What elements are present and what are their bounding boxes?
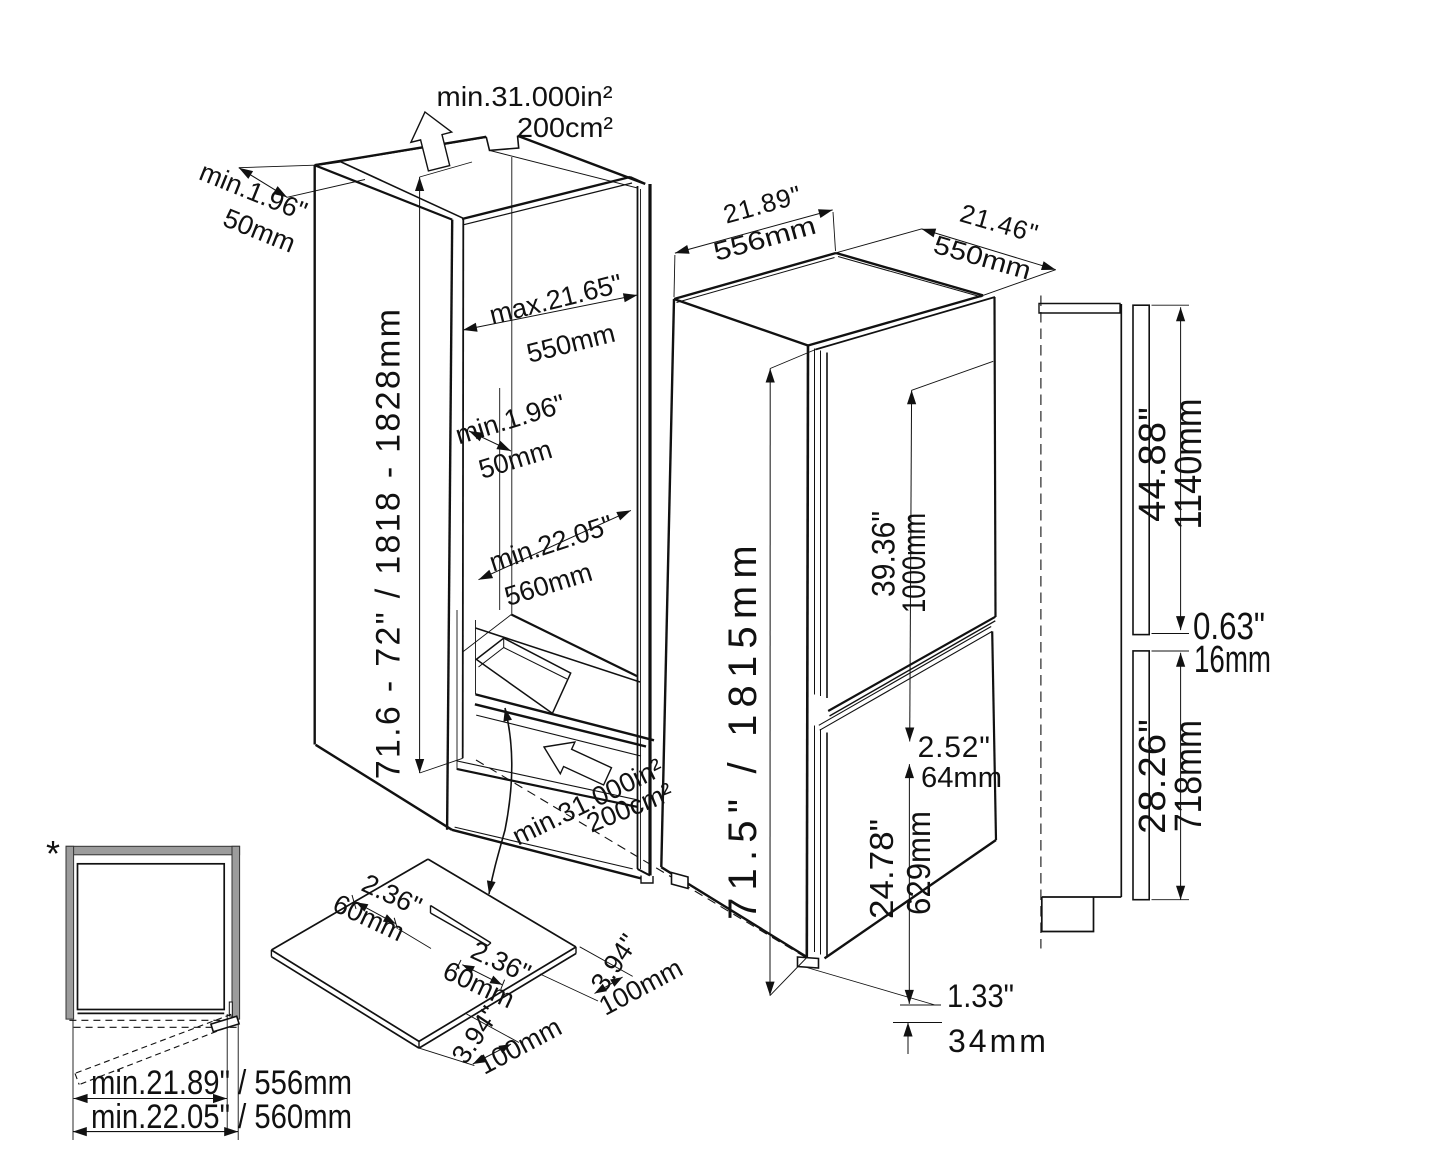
svg-text:16mm: 16mm	[1194, 639, 1271, 681]
svg-text:200cm²: 200cm²	[517, 112, 613, 143]
svg-text:64mm: 64mm	[921, 762, 1002, 794]
svg-text:718mm: 718mm	[1168, 720, 1210, 832]
svg-text:min.22.05" / 560mm: min.22.05" / 560mm	[91, 1098, 352, 1136]
svg-text:34mm: 34mm	[948, 1023, 1049, 1059]
svg-text:24.78": 24.78"	[863, 819, 900, 919]
svg-text:min.21.89" / 556mm: min.21.89" / 556mm	[91, 1064, 352, 1102]
svg-text:2.52": 2.52"	[918, 731, 991, 764]
svg-text:*: *	[46, 833, 60, 874]
svg-text:629mm: 629mm	[900, 811, 937, 915]
svg-text:1.33": 1.33"	[947, 978, 1014, 1014]
svg-text:min.31.000in²: min.31.000in²	[437, 81, 613, 112]
svg-text:1000mm: 1000mm	[896, 513, 932, 613]
svg-text:71.6 - 72" / 1818 - 1828mm: 71.6 - 72" / 1818 - 1828mm	[370, 307, 408, 780]
svg-text:1140mm: 1140mm	[1168, 399, 1210, 530]
svg-text:71.5" / 1815mm: 71.5" / 1815mm	[721, 538, 765, 920]
